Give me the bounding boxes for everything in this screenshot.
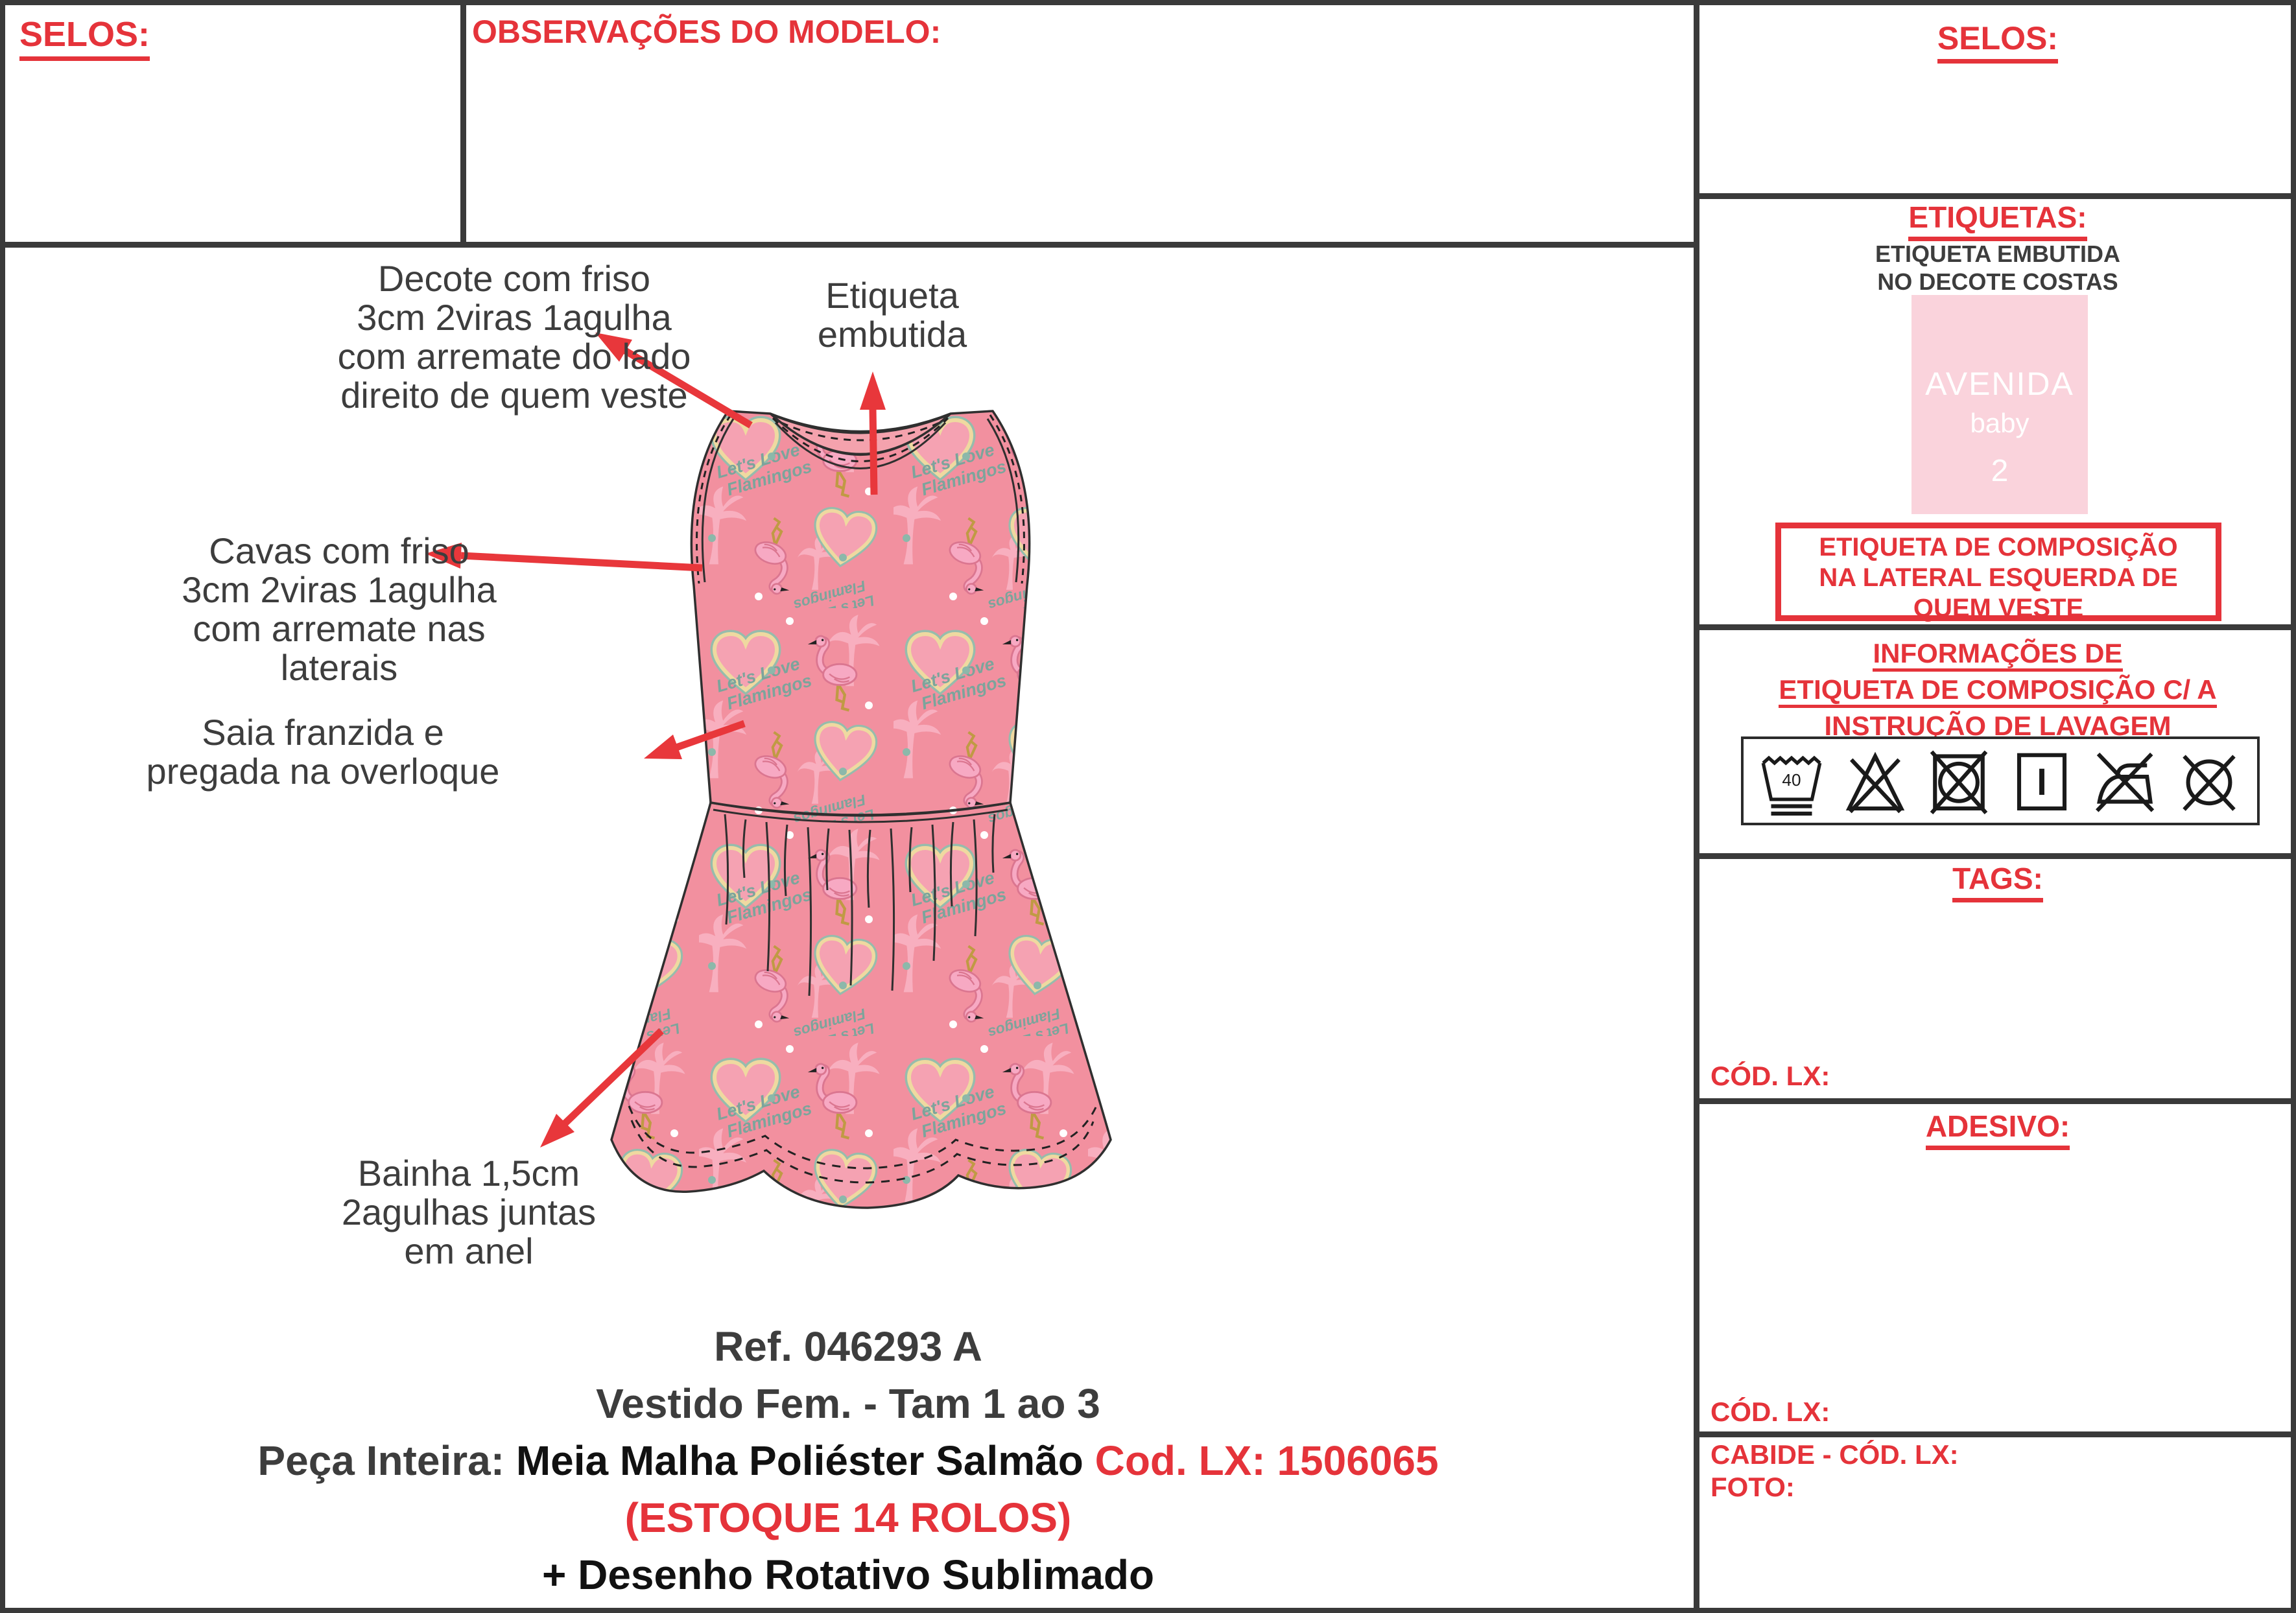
do-not-dry-clean-icon xyxy=(2171,745,2247,818)
etiquetas-title: ETIQUETAS: xyxy=(1699,200,2296,235)
warning-line: QUEM VESTE xyxy=(1781,593,2216,624)
divider-info-tags xyxy=(1699,853,2296,859)
annotation-decote: Decote com friso 3cm 2viras 1agulha com … xyxy=(300,259,728,415)
annotation-line: com arremate nas xyxy=(125,609,553,648)
divider-top-boxes xyxy=(460,5,466,242)
annotation-line: em anel xyxy=(274,1232,663,1271)
divider-main-rightcol xyxy=(1694,5,1699,1608)
divider-selos-etiquetas xyxy=(1699,193,2296,199)
annotation-saia: Saia franzida e pregada na overloque xyxy=(77,713,569,791)
annotation-line: pregada na overloque xyxy=(77,752,569,791)
annotation-line: laterais xyxy=(125,648,553,687)
dress-skirt xyxy=(611,803,1111,1208)
etiquetas-note: ETIQUETA EMBUTIDA NO DECOTE COSTAS xyxy=(1699,240,2296,296)
tags-title: TAGS: xyxy=(1699,861,2296,896)
wash-40-icon: 40 xyxy=(1753,745,1830,818)
annotation-etiqueta: Etiqueta embutida xyxy=(730,276,1054,354)
annotation-line: 3cm 2viras 1agulha xyxy=(300,298,728,337)
fabric-label: Peça Inteira: xyxy=(257,1437,515,1484)
do-not-iron-icon xyxy=(2087,745,2164,818)
divider-adesivo-cabide xyxy=(1699,1431,2296,1437)
annotation-bainha: Bainha 1,5cm 2agulhas juntas em anel xyxy=(274,1154,663,1271)
annotation-line: Etiqueta xyxy=(730,276,1054,315)
care-symbols-box: 40 xyxy=(1741,736,2260,825)
annotation-line: com arremate do lado xyxy=(300,337,728,376)
annotation-line: embutida xyxy=(730,315,1054,354)
observations-title: OBSERVAÇÕES DO MODELO: xyxy=(472,13,941,51)
selos-right-title: SELOS: xyxy=(1699,19,2296,57)
annotation-line: Decote com friso xyxy=(300,259,728,298)
dress-illustration: Let's Love Flamingos Let's Love Flamingo… xyxy=(504,394,1205,1237)
foto-label: FOTO: xyxy=(1710,1472,1795,1503)
tags-cod-lx-label: CÓD. LX: xyxy=(1710,1061,1830,1092)
annotation-line: Cavas com friso xyxy=(125,532,553,571)
annotation-cavas: Cavas com friso 3cm 2viras 1agulha com a… xyxy=(125,532,553,687)
product-print: + Desenho Rotativo Sublimado xyxy=(70,1546,1626,1603)
warning-line: ETIQUETA DE COMPOSIÇÃO xyxy=(1781,532,2216,563)
annotation-line: Bainha 1,5cm xyxy=(274,1154,663,1193)
product-name-size: Vestido Fem. - Tam 1 ao 3 xyxy=(70,1375,1626,1432)
fabric-name: Meia Malha Poliéster Salmão xyxy=(516,1437,1095,1484)
composition-label-warning: ETIQUETA DE COMPOSIÇÃO NA LATERAL ESQUER… xyxy=(1775,523,2221,621)
annotation-line: Saia franzida e xyxy=(77,713,569,752)
do-not-tumble-dry-icon xyxy=(1921,745,1997,818)
adesivo-title: ADESIVO: xyxy=(1699,1109,2296,1144)
etiquetas-note-line: NO DECOTE COSTAS xyxy=(1699,268,2296,296)
label-swatch: AVENIDA baby 2 xyxy=(1911,295,2088,514)
product-ref: Ref. 046293 A xyxy=(70,1318,1626,1375)
dress-bodice xyxy=(691,411,1029,815)
etiquetas-note-line: ETIQUETA EMBUTIDA xyxy=(1699,240,2296,268)
care-info-title: INFORMAÇÕES DE ETIQUETA DE COMPOSIÇÃO C/… xyxy=(1699,635,2296,744)
label-size: 2 xyxy=(1911,453,2088,489)
product-fabric-line: Peça Inteira: Meia Malha Poliéster Salmã… xyxy=(70,1432,1626,1489)
fabric-code: Cod. LX: 1506065 xyxy=(1095,1437,1439,1484)
wash-temp-value: 40 xyxy=(1782,770,1801,790)
cabide-cod-lx-label: CABIDE - CÓD. LX: xyxy=(1710,1439,1959,1470)
divider-tags-adesivo xyxy=(1699,1098,2296,1104)
selos-left-title: SELOS: xyxy=(19,14,150,54)
product-info: Ref. 046293 A Vestido Fem. - Tam 1 ao 3 … xyxy=(70,1318,1626,1603)
do-not-bleach-icon xyxy=(1837,745,1913,818)
annotation-line: direito de quem veste xyxy=(300,376,728,415)
annotation-line: 3cm 2viras 1agulha xyxy=(125,571,553,609)
label-brand: AVENIDA xyxy=(1911,365,2088,403)
divider-etiquetas-info xyxy=(1699,624,2296,630)
annotation-line: 2agulhas juntas xyxy=(274,1193,663,1232)
warning-line: NA LATERAL ESQUERDA DE xyxy=(1781,563,2216,593)
adesivo-cod-lx-label: CÓD. LX: xyxy=(1710,1396,1830,1428)
label-sub-brand: baby xyxy=(1911,408,2088,439)
tech-pack-sheet: SELOS: OBSERVAÇÕES DO MODELO: xyxy=(0,0,2296,1613)
line-dry-icon xyxy=(2004,745,2080,818)
divider-top-main xyxy=(5,242,1699,248)
product-stock: (ESTOQUE 14 ROLOS) xyxy=(70,1489,1626,1546)
